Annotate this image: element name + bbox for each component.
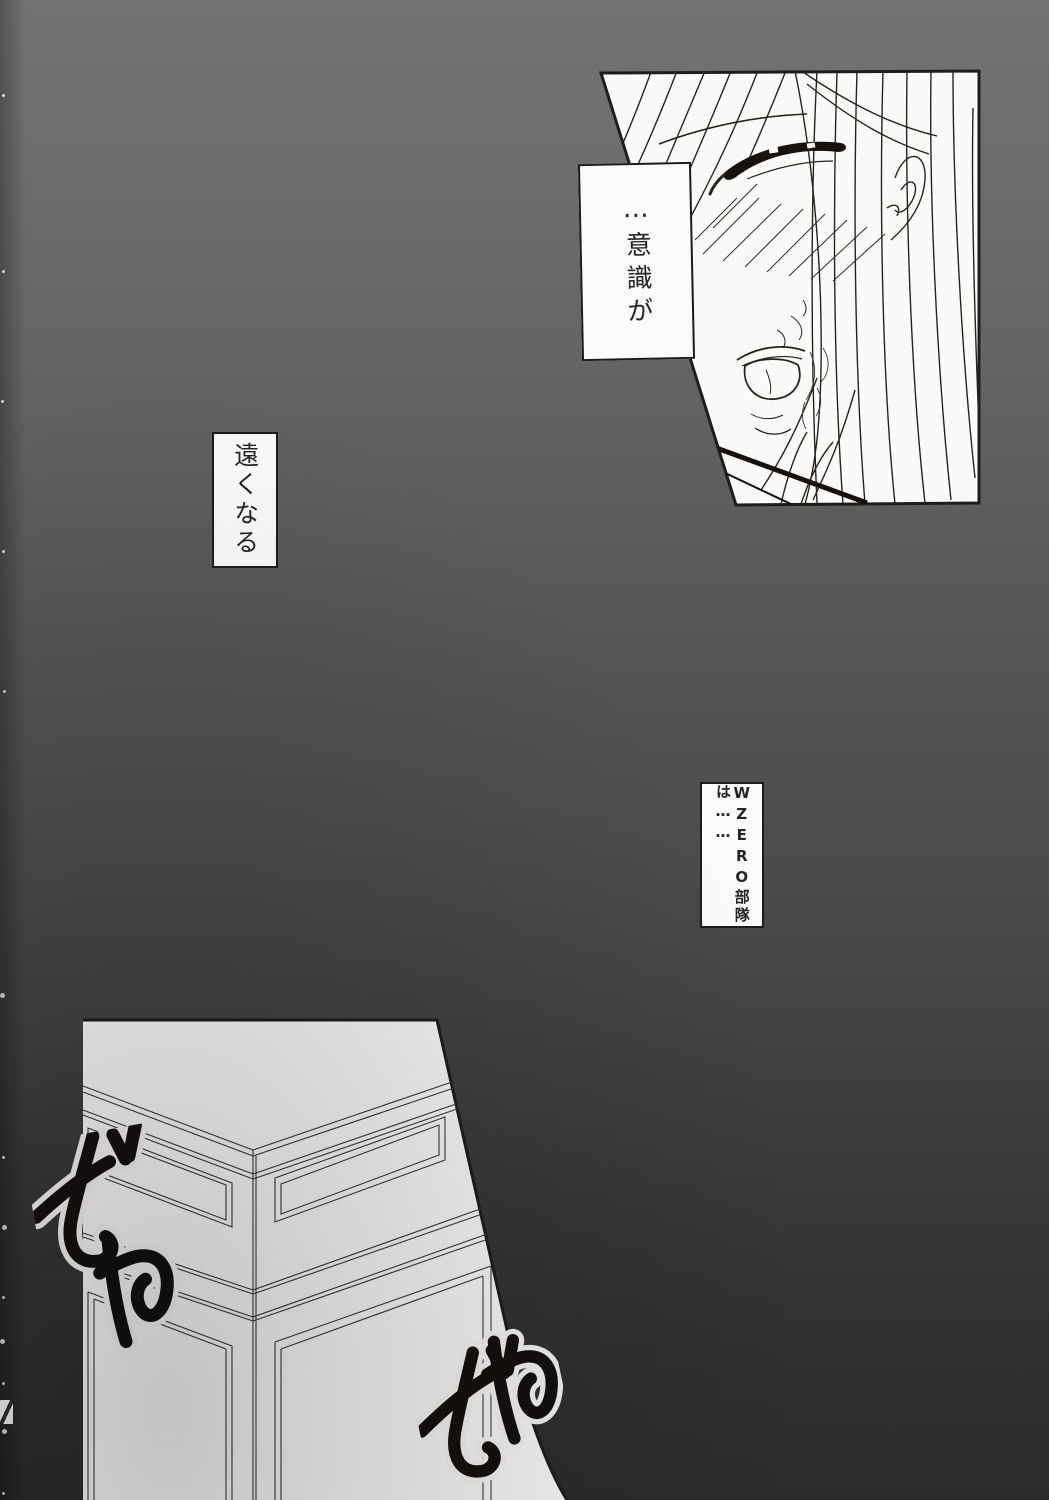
page-number-fragment xyxy=(0,1400,13,1424)
binding-edge-specks xyxy=(2,94,5,97)
speech-box-fading: 遠くなる xyxy=(212,432,278,568)
speech-box-wzero: WZERO部隊は…… xyxy=(700,782,764,928)
binding-edge-shadow xyxy=(0,0,26,1500)
manga-page: ざわ ざわ xyxy=(0,0,1049,1500)
speech-box-consciousness: …意識が xyxy=(578,162,695,361)
